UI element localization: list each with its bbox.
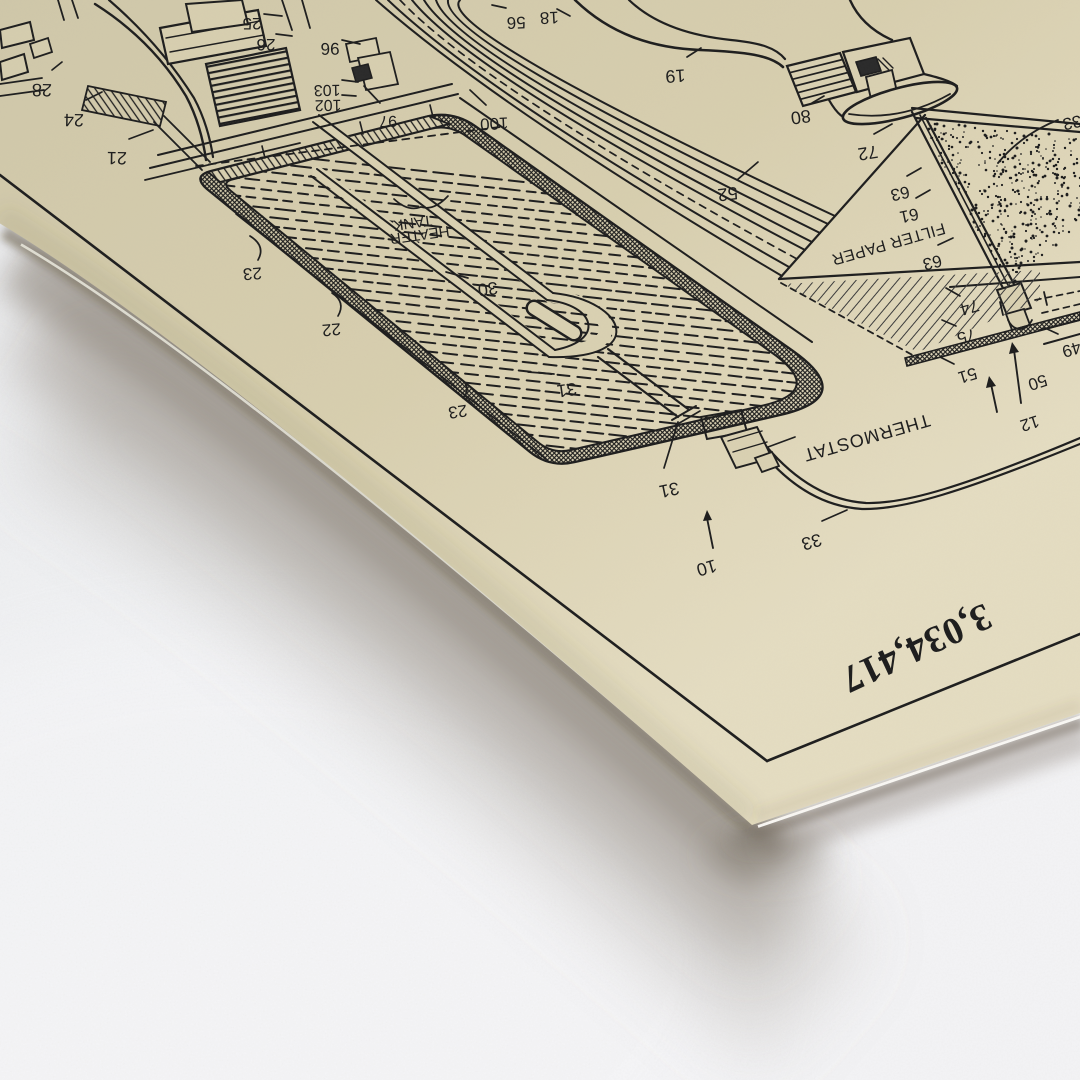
svg-text:21: 21 (107, 148, 127, 168)
svg-text:28: 28 (32, 80, 52, 100)
svg-text:103: 103 (313, 81, 340, 98)
svg-text:96: 96 (320, 39, 339, 58)
svg-text:61: 61 (898, 204, 920, 227)
svg-text:23: 23 (447, 401, 468, 422)
svg-text:22: 22 (321, 319, 342, 340)
svg-text:97: 97 (379, 112, 397, 130)
svg-text:80: 80 (790, 106, 813, 129)
svg-text:19: 19 (665, 65, 686, 86)
svg-text:72: 72 (856, 141, 879, 164)
svg-text:102: 102 (314, 96, 341, 113)
svg-text:24: 24 (64, 110, 84, 130)
svg-text:25: 25 (243, 14, 262, 33)
svg-text:56: 56 (506, 13, 526, 33)
svg-text:23: 23 (242, 263, 262, 283)
svg-text:31: 31 (556, 379, 579, 402)
svg-text:30: 30 (477, 278, 500, 301)
svg-text:52: 52 (717, 183, 739, 205)
svg-text:63: 63 (889, 182, 911, 205)
svg-text:18: 18 (539, 8, 559, 28)
svg-text:31: 31 (657, 478, 681, 502)
svg-text:26: 26 (257, 35, 276, 54)
svg-text:100: 100 (480, 113, 509, 133)
